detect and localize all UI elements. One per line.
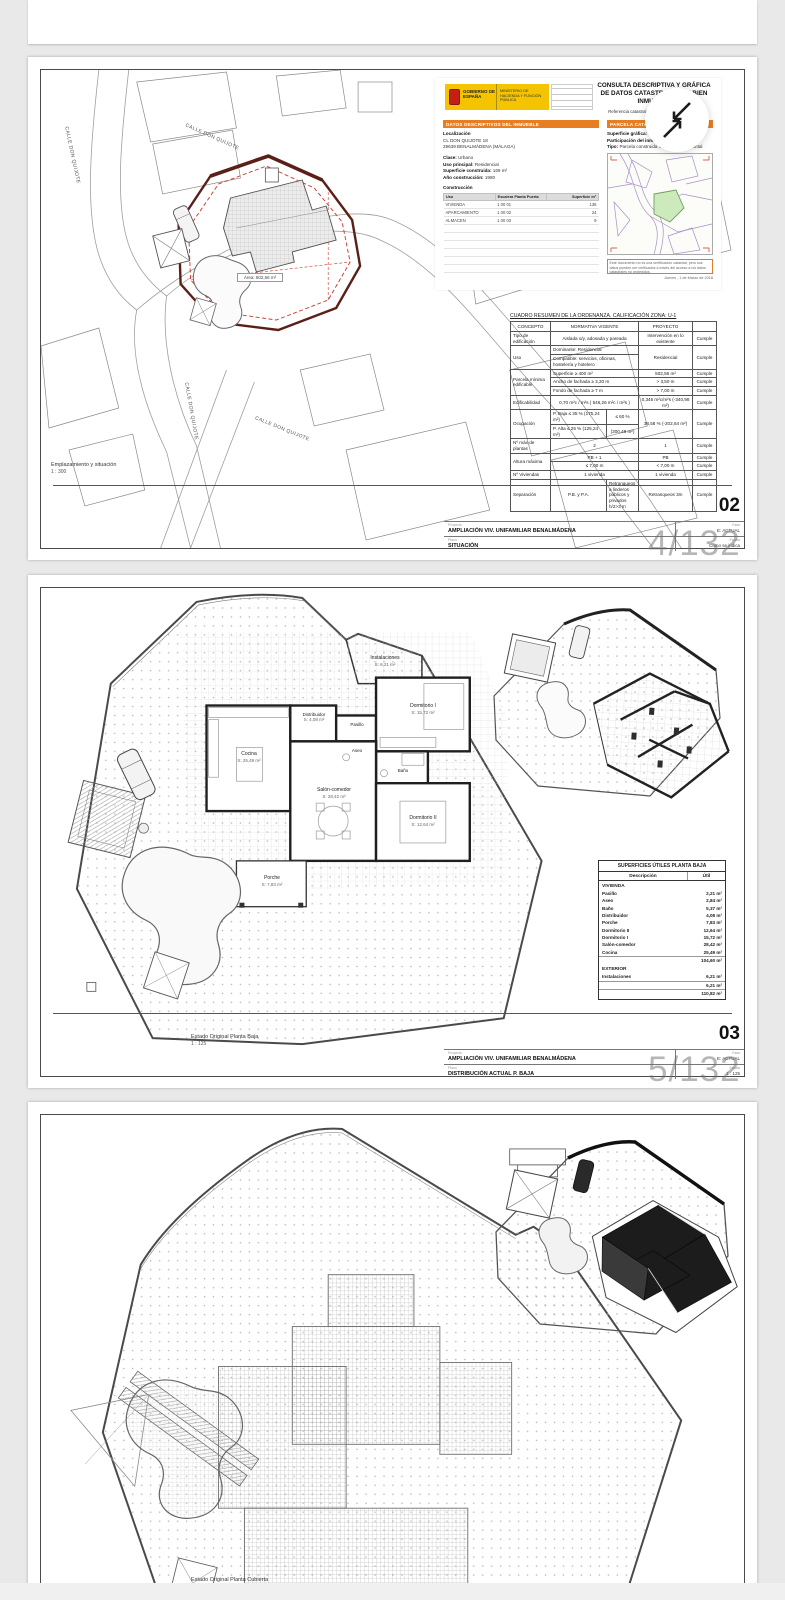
ordinance-table: CONCEPTONORMATIVA VIGENTEPROYECTO Tipo d… bbox=[510, 321, 717, 512]
table-row: Instalaciones6,21 m² bbox=[599, 973, 725, 980]
project-name: AMPLIACIÓN VIV. UNIFAMILIAR BENALMÁDENA bbox=[448, 528, 576, 534]
subtotal-row: 104,60 m² bbox=[599, 956, 725, 964]
plan-name: DISTRIBUCIÓN ACTUAL P. BAJA bbox=[448, 1071, 534, 1077]
spain-government-logo: GOBIERNO DE ESPAÑA MINISTERIO DE HACIEND… bbox=[445, 84, 549, 110]
sheet-number: 03 bbox=[719, 1023, 740, 1045]
axonometric-roof-view bbox=[480, 1132, 740, 1362]
room-label-dorm1: Dormitorio IS: 15,72 m² bbox=[393, 704, 453, 715]
plan-name: SITUACIÓN bbox=[448, 543, 478, 549]
subtotal-row: 6,21 m² bbox=[599, 981, 725, 989]
room-label-aseo: Aseo bbox=[341, 748, 373, 753]
table-row: Pasillo2,21 m² bbox=[599, 890, 725, 897]
page-sheet-03-distribucion: CocinaS: 25,49 m² Salón-comedorS: 28,42 … bbox=[28, 575, 757, 1088]
room-label-porche: PorcheS: 7,83 m² bbox=[247, 876, 297, 887]
viewer-bottom-strip bbox=[0, 1583, 785, 1600]
page-indicator: 4/132 bbox=[648, 524, 741, 564]
parcel-area-label: Área: 502,56 m² bbox=[237, 273, 283, 282]
ordinance-summary: CUADRO RESUMEN DE LA ORDENANZA. CALIFICA… bbox=[510, 313, 718, 512]
loc-label: Localización bbox=[443, 131, 471, 136]
titleblock-divider bbox=[53, 1013, 732, 1014]
collapse-icon bbox=[645, 88, 709, 152]
plan-caption: Emplazamiento y situación 1 : 300 bbox=[51, 462, 116, 476]
room-label-bano: Baño bbox=[383, 768, 423, 773]
project-name: AMPLIACIÓN VIV. UNIFAMILIAR BENALMÁDENA bbox=[448, 1056, 576, 1062]
certificate-date: Jueves , 1 de Marzo de 2018 bbox=[607, 276, 713, 280]
certificate-note: Este documento no es una certificación c… bbox=[607, 259, 713, 274]
coat-of-arms-icon bbox=[449, 89, 460, 105]
room-label-pasillo: Pasillo bbox=[340, 722, 374, 727]
cadastral-mini-map bbox=[607, 153, 713, 255]
table-row: Dormitorio I15,72 m² bbox=[599, 934, 725, 941]
table-row: Aseo2,84 m² bbox=[599, 897, 725, 904]
page-sheet-02-situacion: CALLE DON QUIJOTE CALLE DON QUIJOTE CALL… bbox=[28, 57, 757, 560]
room-label-cocina: CocinaS: 25,49 m² bbox=[221, 752, 277, 763]
section-datos-inmueble: DATOS DESCRIPTIVOS DEL INMUEBLE bbox=[443, 120, 599, 128]
room-label-instalaciones: InstalacionesS: 6,21 m² bbox=[357, 656, 413, 667]
room-label-distribuidor: DistribuidorS: 4,08 m² bbox=[292, 712, 336, 722]
collapse-button[interactable] bbox=[645, 88, 709, 152]
previous-page-bottom bbox=[28, 0, 757, 44]
room-label-dorm2: Dormitorio IIS: 12,64 m² bbox=[393, 816, 453, 827]
address-line-1: CL DON QUIJOTE 18 bbox=[443, 138, 488, 143]
page-sheet-04-cubierta: Estado Original Planta Cubierta 04 bbox=[28, 1102, 757, 1600]
table-row: Salón-comedor28,42 m² bbox=[599, 941, 725, 948]
pdf-viewer: { "viewer": { "badge1": "4/132", "badge2… bbox=[0, 0, 785, 1600]
table-row: Dormitorio II12,64 m² bbox=[599, 927, 725, 934]
ordinance-title: CUADRO RESUMEN DE LA ORDENANZA. CALIFICA… bbox=[510, 313, 718, 319]
plan-caption: Estado Original Planta Baja 1 : 125 bbox=[191, 1034, 258, 1048]
axonometric-view bbox=[480, 600, 730, 810]
table-row: Cocina25,49 m² bbox=[599, 949, 725, 956]
gov-label: GOBIERNO DE ESPAÑA bbox=[463, 84, 497, 110]
certificate-code-box bbox=[551, 84, 593, 110]
sheet-number: 02 bbox=[719, 495, 740, 517]
table-row: Porche7,83 m² bbox=[599, 919, 725, 926]
ministry-label: MINISTERIO DE HACIENDA Y FUNCIÓN PÚBLICA bbox=[497, 84, 545, 110]
table-row: Baño5,37 m² bbox=[599, 905, 725, 912]
address-line-2: 29639 BENALMÁDENA (MÁLAGA) bbox=[443, 144, 515, 149]
construction-table: UsoEscalera Planta PuertaSuperficie m² V… bbox=[443, 193, 599, 273]
room-label-salon: Salón-comedorS: 28,42 m² bbox=[303, 788, 365, 799]
total-row: 110,82 m² bbox=[599, 989, 725, 999]
table-row: Distribuidor4,08 m² bbox=[599, 912, 725, 919]
page-indicator: 5/132 bbox=[648, 1050, 741, 1090]
areas-table: SUPERFICIES ÚTILES PLANTA BAJA Descripci… bbox=[598, 860, 726, 1000]
